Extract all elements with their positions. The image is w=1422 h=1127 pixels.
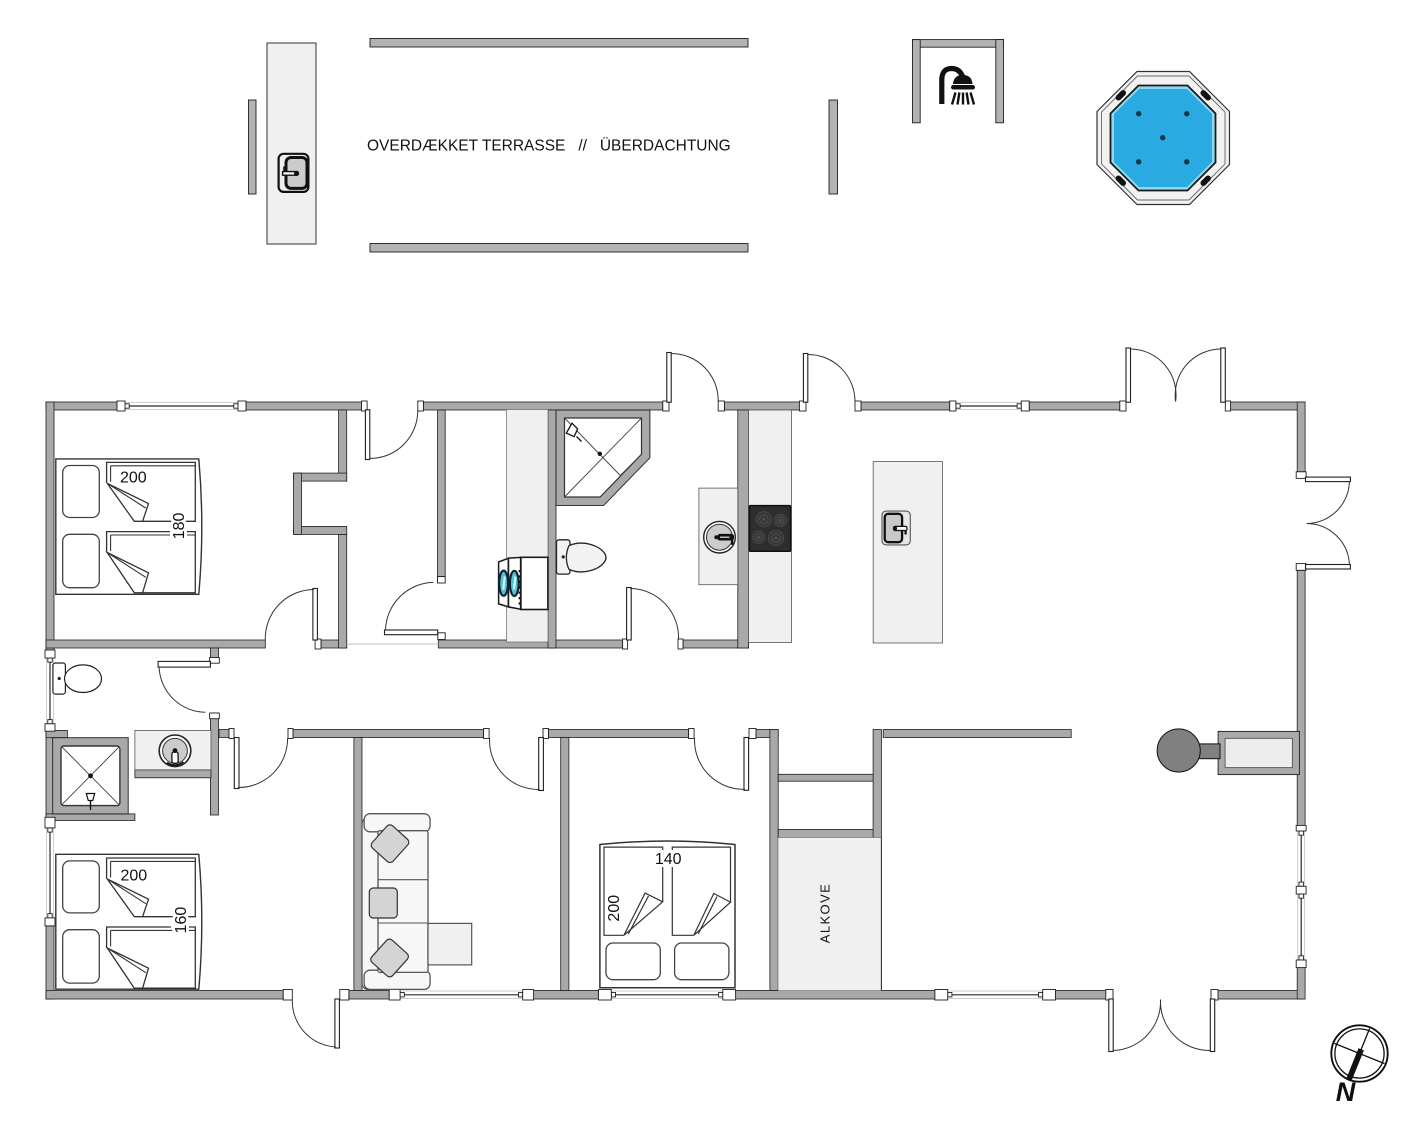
svg-text:200: 200 [120, 470, 147, 487]
svg-text:OVERDÆKKET TERRASSE // ÜBE: OVERDÆKKET TERRASSE // ÜBERDACHTUNG [367, 137, 731, 155]
svg-text:200: 200 [120, 867, 147, 884]
svg-text:160: 160 [173, 907, 190, 934]
svg-text:ALKOVE: ALKOVE [818, 883, 833, 943]
svg-text:N: N [1336, 1077, 1356, 1107]
svg-text:140: 140 [655, 851, 682, 868]
svg-text:180: 180 [171, 512, 188, 539]
svg-text:200: 200 [606, 895, 623, 922]
